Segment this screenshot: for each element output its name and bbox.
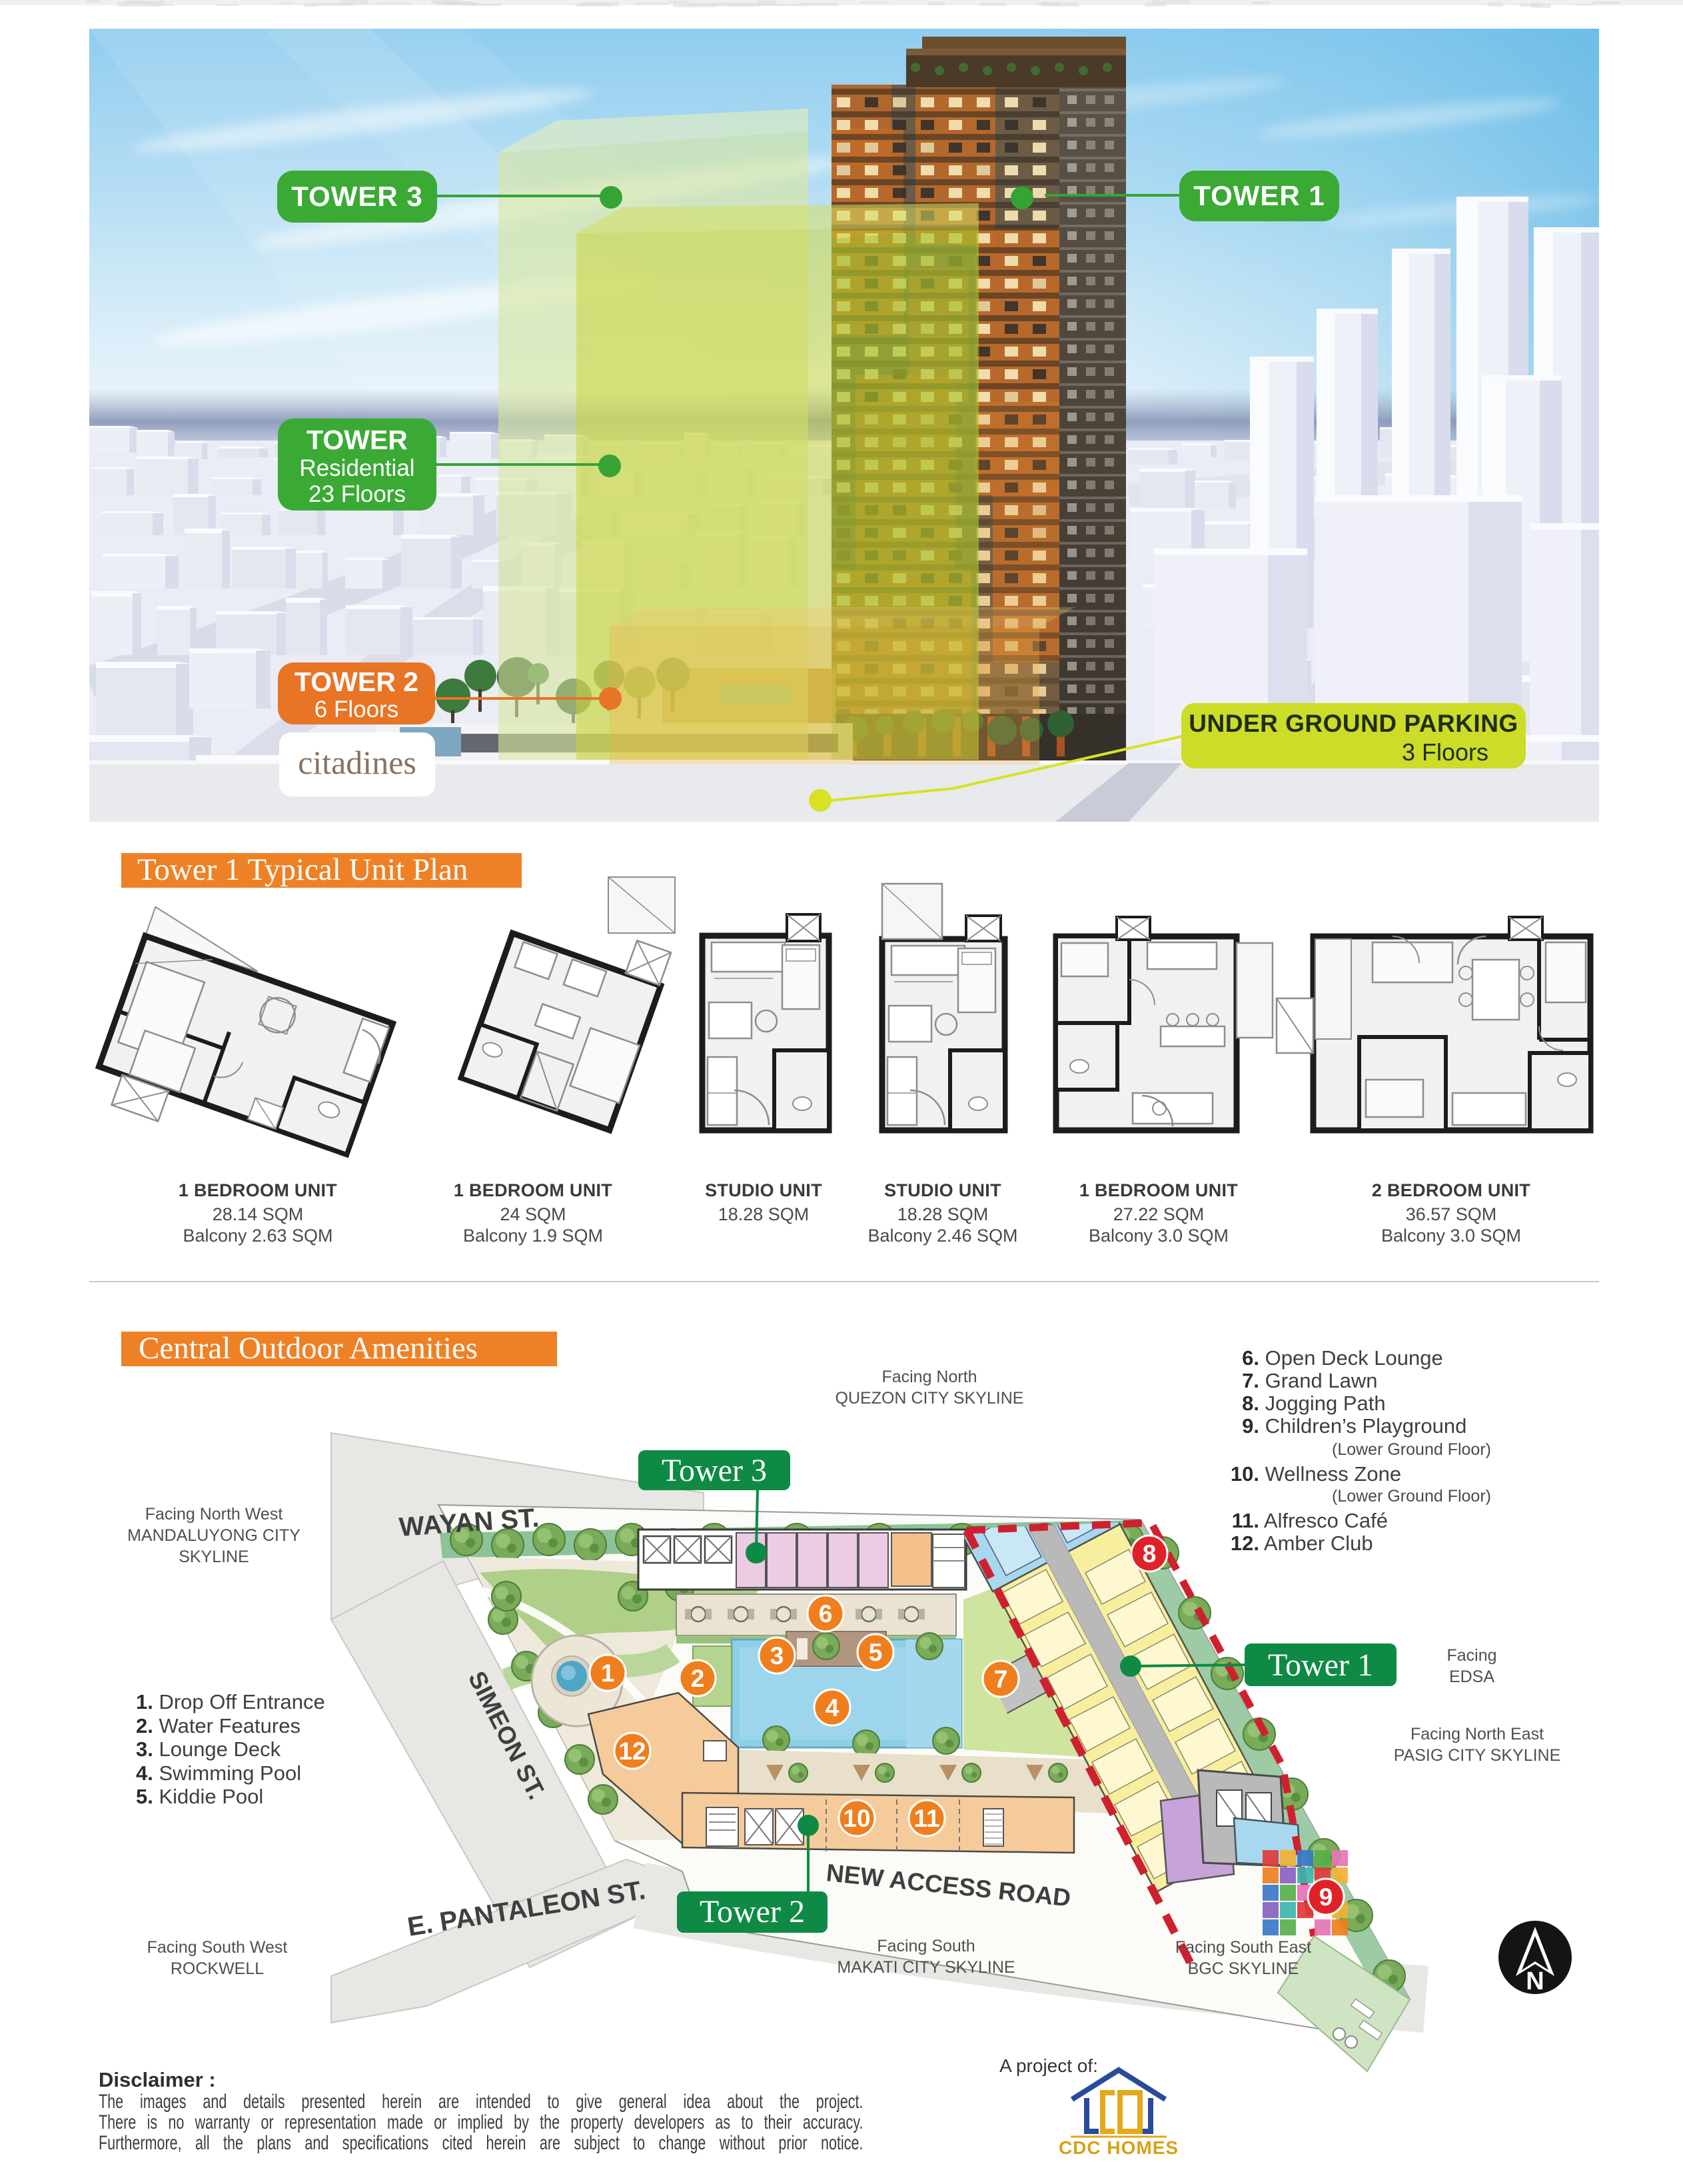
svg-text:Tower 1: Tower 1 bbox=[1268, 1647, 1373, 1683]
svg-text:12: 12 bbox=[618, 1737, 646, 1765]
svg-text:2: 2 bbox=[691, 1665, 705, 1692]
svg-text:3: 3 bbox=[770, 1642, 784, 1669]
svg-text:N: N bbox=[1526, 1967, 1544, 1995]
svg-text:9: 9 bbox=[1319, 1883, 1333, 1911]
svg-text:4: 4 bbox=[826, 1694, 840, 1721]
svg-text:5: 5 bbox=[869, 1639, 883, 1666]
svg-text:CDC HOMES: CDC HOMES bbox=[1059, 2137, 1179, 2158]
svg-text:11: 11 bbox=[913, 1805, 939, 1832]
svg-text:1: 1 bbox=[601, 1659, 615, 1687]
svg-text:6: 6 bbox=[819, 1600, 833, 1628]
svg-text:7: 7 bbox=[994, 1665, 1008, 1693]
svg-text:10: 10 bbox=[843, 1805, 870, 1832]
svg-text:Tower 2: Tower 2 bbox=[700, 1894, 805, 1929]
svg-text:Tower 3: Tower 3 bbox=[662, 1453, 767, 1488]
svg-text:8: 8 bbox=[1143, 1540, 1157, 1568]
